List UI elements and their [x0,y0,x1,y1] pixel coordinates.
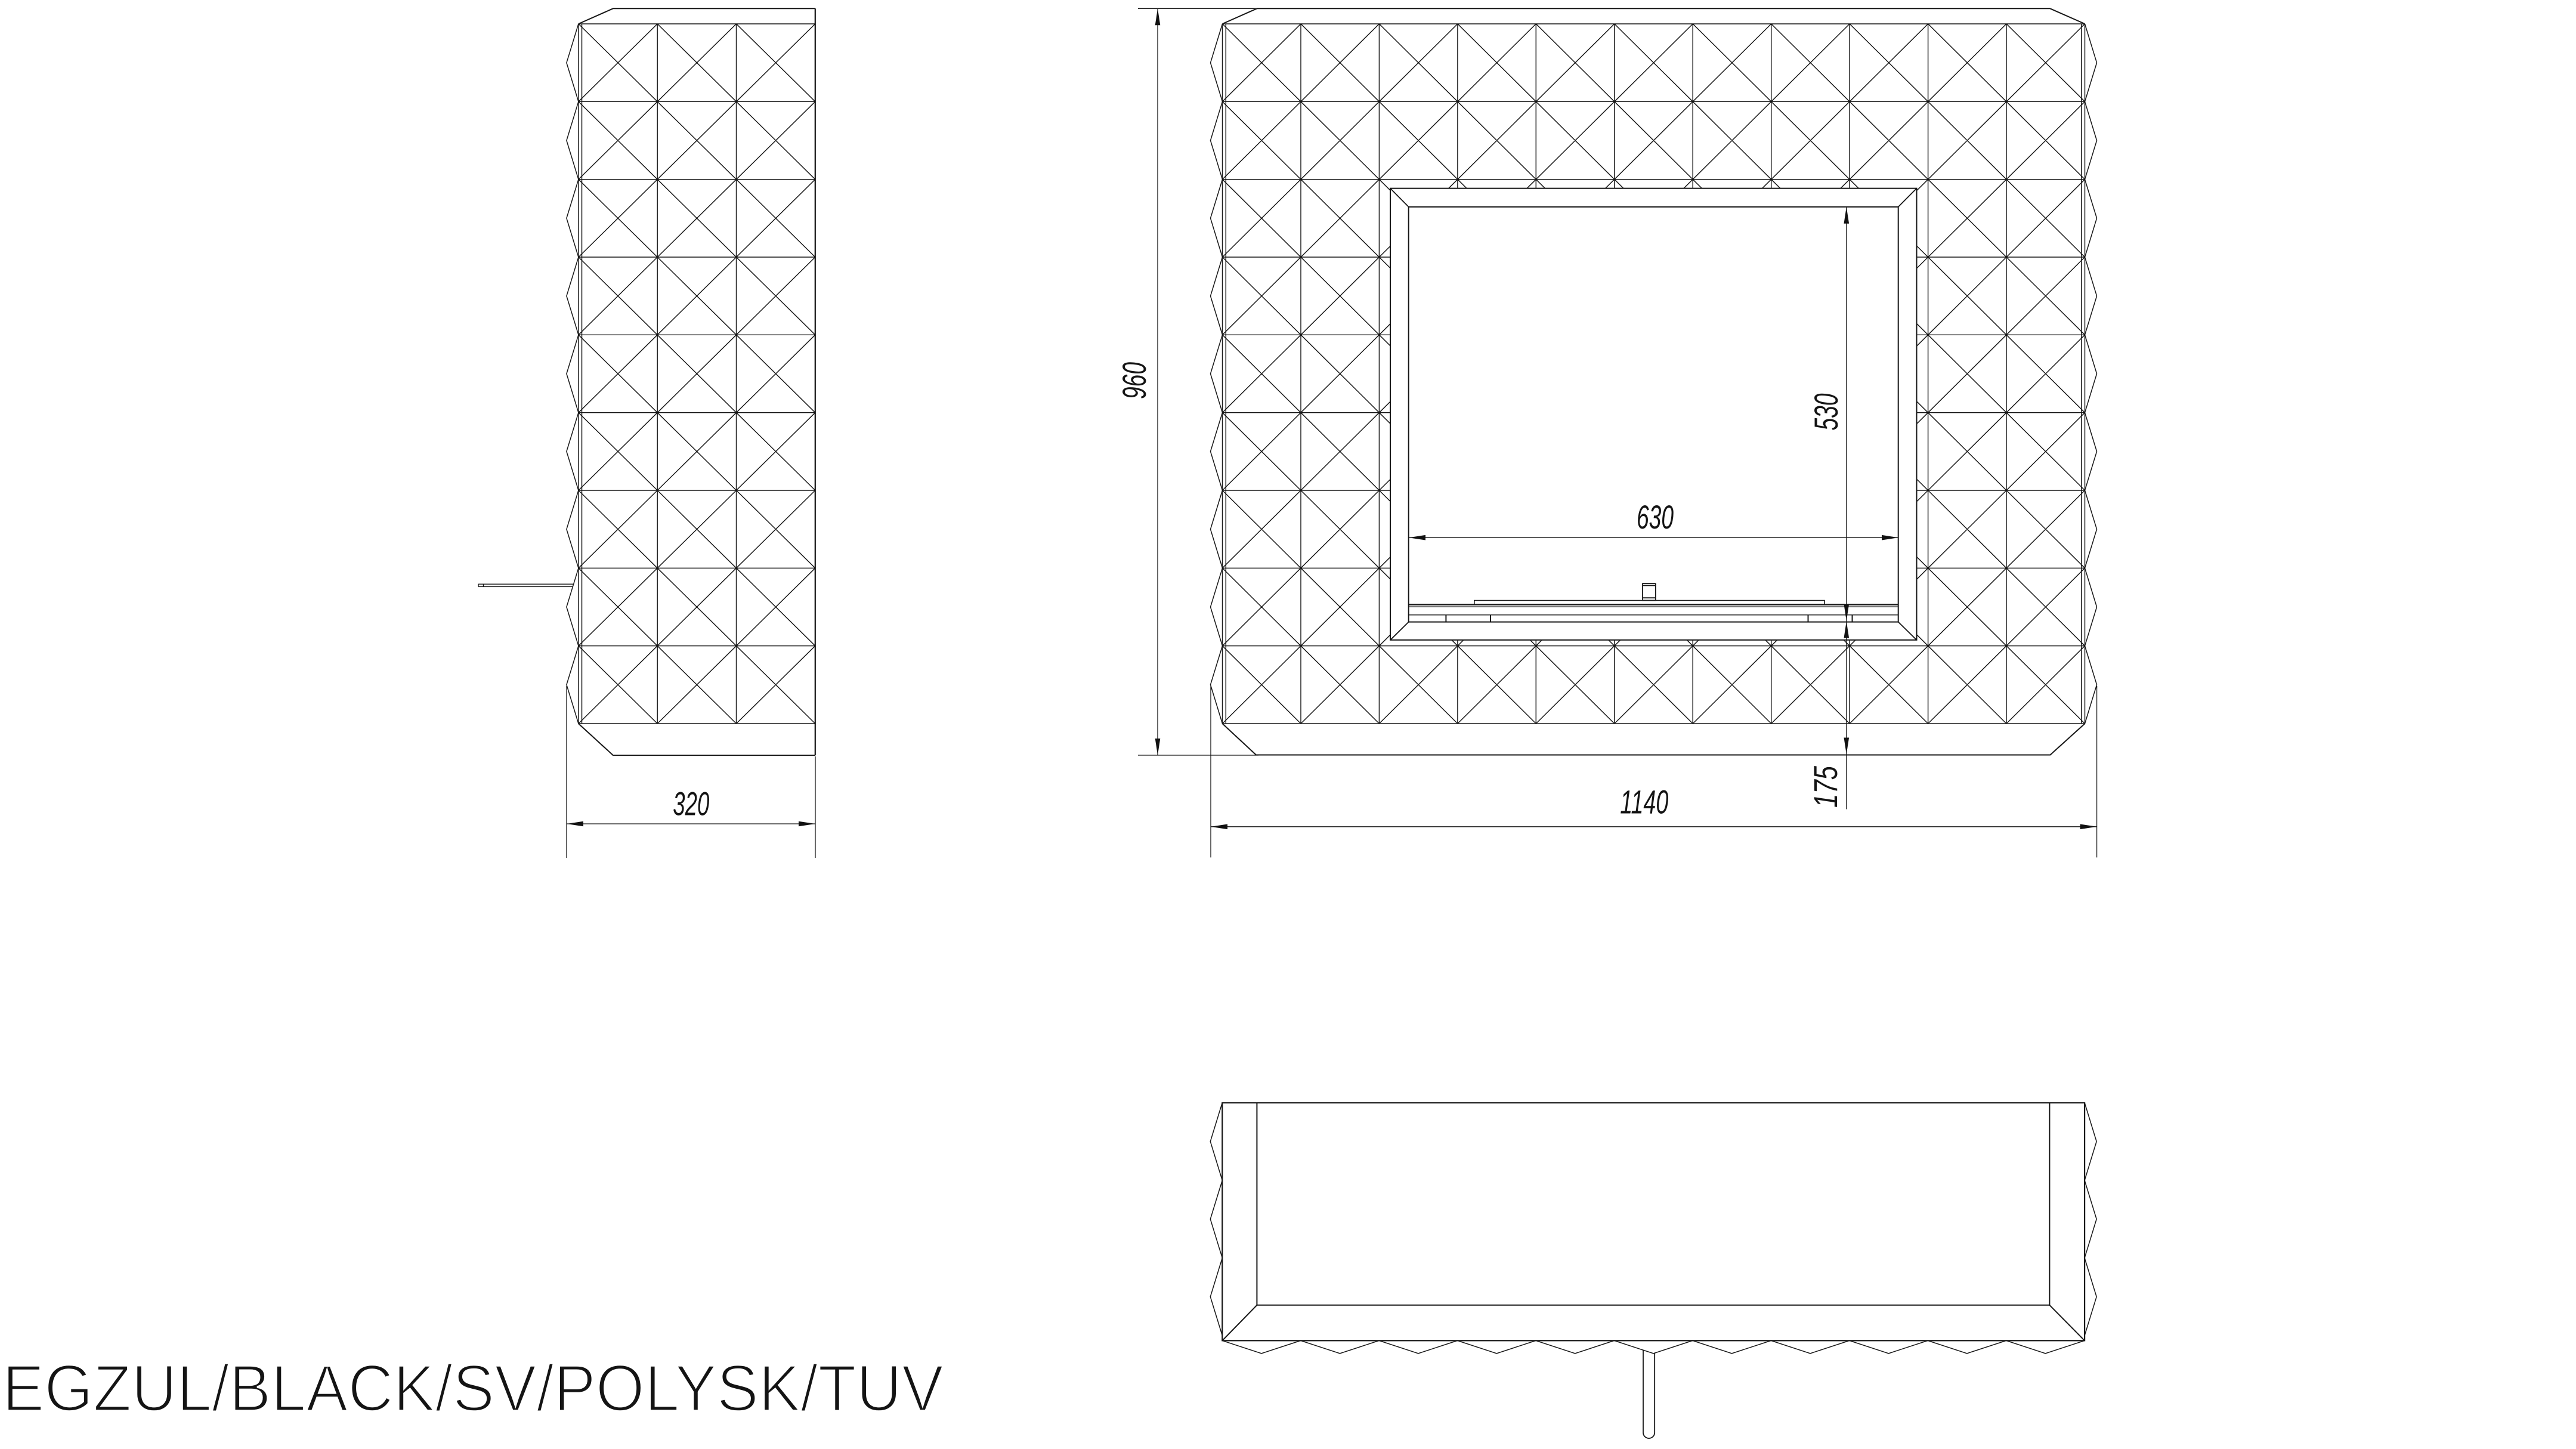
svg-text:1140: 1140 [1620,783,1668,821]
svg-text:630: 630 [1637,498,1674,536]
svg-text:175: 175 [1807,765,1844,808]
svg-text:EGZUL/BLACK/SV/POLYSK/TUV: EGZUL/BLACK/SV/POLYSK/TUV [2,1352,944,1425]
svg-text:530: 530 [1807,394,1845,431]
svg-text:320: 320 [673,784,709,822]
svg-text:960: 960 [1115,362,1153,399]
